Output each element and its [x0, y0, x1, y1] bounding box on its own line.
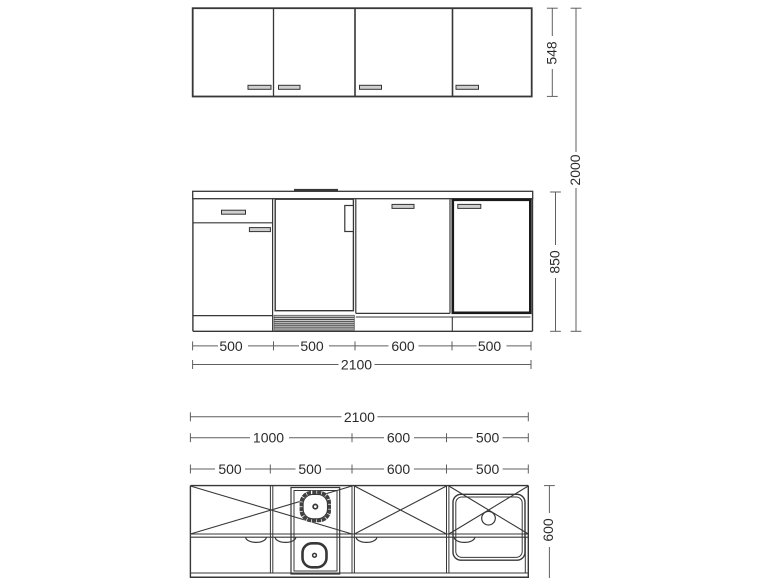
svg-text:500: 500	[476, 430, 500, 446]
svg-text:500: 500	[300, 338, 324, 354]
svg-text:600: 600	[387, 461, 411, 477]
svg-text:1000: 1000	[253, 430, 284, 446]
svg-text:500: 500	[478, 338, 502, 354]
svg-text:2000: 2000	[567, 154, 583, 185]
svg-text:500: 500	[298, 461, 322, 477]
svg-text:500: 500	[218, 461, 242, 477]
svg-text:600: 600	[387, 430, 411, 446]
svg-text:2100: 2100	[344, 409, 375, 425]
svg-text:548: 548	[543, 41, 559, 65]
svg-text:2100: 2100	[341, 357, 372, 373]
svg-text:600: 600	[540, 518, 556, 542]
svg-text:500: 500	[219, 338, 243, 354]
svg-text:500: 500	[476, 461, 500, 477]
svg-text:850: 850	[547, 250, 563, 274]
svg-text:600: 600	[391, 338, 415, 354]
